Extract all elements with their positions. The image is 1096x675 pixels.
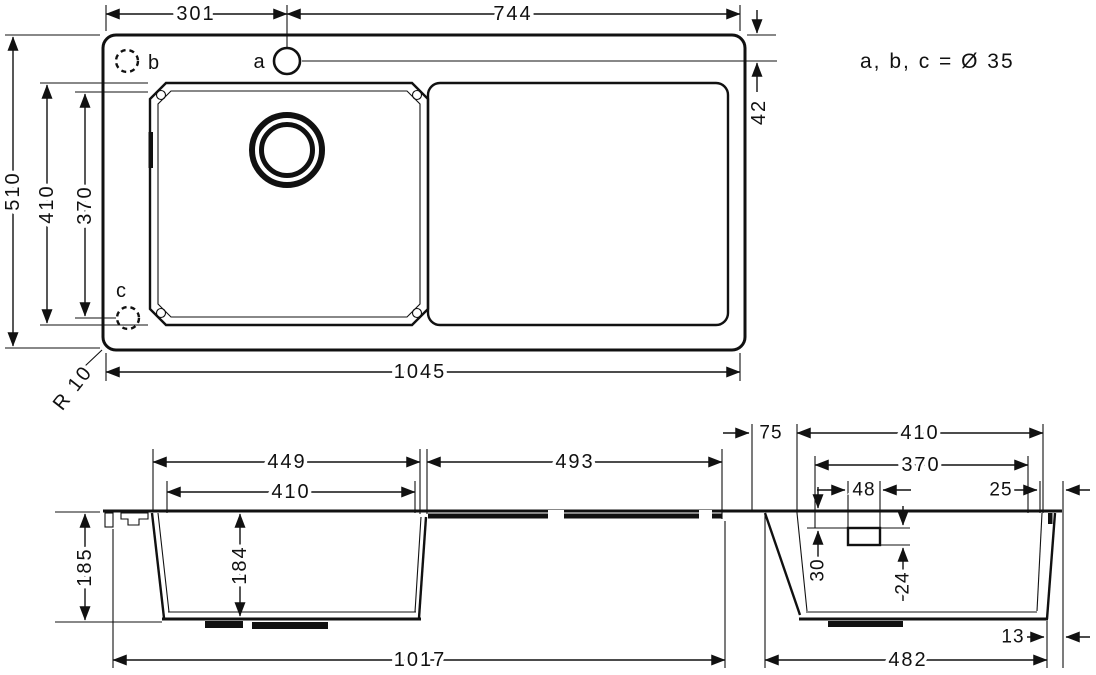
svg-text:1017: 1017 xyxy=(394,649,447,671)
bowl-corner-detail xyxy=(157,91,166,100)
svg-text:510: 510 xyxy=(2,171,24,210)
technical-drawing-sheet: a b c a, b, c = Ø 35 301 744 42 xyxy=(0,0,1096,675)
svg-text:410: 410 xyxy=(271,481,310,503)
dim-185: 185 xyxy=(55,512,162,622)
edge-clip-mark xyxy=(1048,513,1053,524)
hole-a-label: a xyxy=(253,51,266,73)
bowl-wall-right-outer xyxy=(1047,513,1055,619)
dim-301: 301 xyxy=(106,3,287,47)
tap-hole-b-optional xyxy=(116,50,138,72)
bowl-corner-detail xyxy=(413,309,422,318)
dim-370-top: 370 xyxy=(74,92,148,318)
sink-dimension-drawing: a b c a, b, c = Ø 35 301 744 42 xyxy=(0,0,1096,675)
bottom-pad xyxy=(252,622,328,629)
hole-c-label: c xyxy=(116,280,128,302)
tap-hole-a xyxy=(274,48,300,74)
left-edge-profile xyxy=(105,513,113,527)
svg-text:24: 24 xyxy=(893,571,914,594)
bowl-wall-left-inner xyxy=(797,513,807,611)
dim-184: 184 xyxy=(229,514,251,616)
drainboard-outline xyxy=(428,83,728,325)
dim-410-side: 410 xyxy=(167,481,415,513)
svg-text:75: 75 xyxy=(759,423,782,444)
svg-text:30: 30 xyxy=(808,558,829,581)
svg-text:482: 482 xyxy=(888,649,927,671)
svg-text:410: 410 xyxy=(900,422,939,444)
mounting-bracket xyxy=(121,513,148,525)
dim-493: 493 xyxy=(427,449,722,514)
dim-24: 24 xyxy=(893,506,914,601)
svg-text:48: 48 xyxy=(852,480,875,501)
tap-hole-c-optional xyxy=(117,307,139,329)
overflow-mark xyxy=(149,132,154,168)
drainboard-slot xyxy=(548,510,564,521)
corner-radius-label: R 10 xyxy=(49,350,102,415)
drainboard-slot xyxy=(699,510,712,521)
dim-30: 30 xyxy=(808,487,829,584)
svg-text:744: 744 xyxy=(493,3,532,25)
svg-text:184: 184 xyxy=(229,545,251,584)
svg-text:370: 370 xyxy=(901,454,940,476)
svg-text:13: 13 xyxy=(1001,627,1024,648)
svg-text:370: 370 xyxy=(74,185,96,224)
drain-inner-ring xyxy=(262,125,313,176)
svg-text:410: 410 xyxy=(36,184,58,223)
svg-text:1045: 1045 xyxy=(394,361,447,383)
bottom-pad xyxy=(205,621,243,628)
svg-text:185: 185 xyxy=(74,547,96,586)
dim-1045: 1045 xyxy=(106,353,740,383)
top-view: a b c a, b, c = Ø 35 301 744 42 xyxy=(2,3,1015,415)
bowl-corner-detail xyxy=(157,309,166,318)
dim-75: 75 xyxy=(723,423,783,512)
mounting-clip xyxy=(848,528,880,545)
svg-text:449: 449 xyxy=(267,451,306,473)
bottom-pad xyxy=(828,621,903,627)
side-section-view: 449 493 410 185 184 xyxy=(55,449,725,671)
hole-diameter-note: a, b, c = Ø 35 xyxy=(860,50,1015,73)
svg-text:25: 25 xyxy=(989,480,1012,501)
bowl-corner-detail xyxy=(413,91,422,100)
hole-b-label: b xyxy=(148,52,161,74)
end-section-view: 75 410 370 48 25 xyxy=(722,422,1090,671)
bowl-wall-left-outer xyxy=(152,513,164,618)
dim-744: 744 xyxy=(287,3,740,31)
dim-42: 42 xyxy=(747,10,776,125)
bowl-wall-left-inner xyxy=(158,513,169,612)
bowl-wall-right-inner xyxy=(1037,513,1042,611)
bowl-wall-left-outer xyxy=(765,513,800,615)
svg-text:42: 42 xyxy=(748,99,770,125)
svg-text:493: 493 xyxy=(555,451,594,473)
svg-text:301: 301 xyxy=(176,3,215,25)
dim-13: 13 xyxy=(1001,621,1090,668)
svg-text:R 10: R 10 xyxy=(49,361,97,414)
bowl-outline-outer xyxy=(150,83,428,325)
